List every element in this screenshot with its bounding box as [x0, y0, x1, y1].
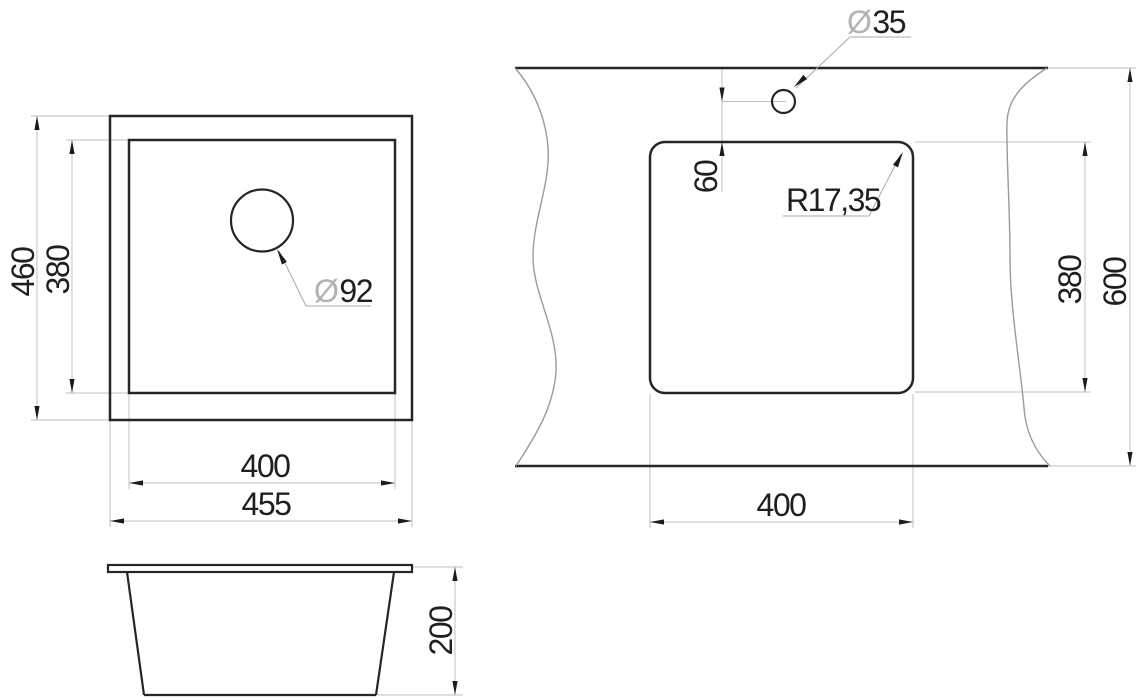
leader-arrowhead	[277, 249, 287, 265]
dim-label-depth: 200	[423, 606, 459, 656]
hole-diameter-value: 35	[872, 4, 905, 40]
arrowhead	[719, 88, 724, 102]
arrowhead	[1127, 452, 1132, 466]
arrowhead	[1082, 142, 1087, 156]
arrowhead	[452, 567, 457, 581]
arrowhead	[69, 140, 74, 154]
dim-label-corner-radius: R17,35	[786, 182, 881, 218]
drain-hole	[231, 190, 293, 252]
arrowhead	[381, 480, 395, 485]
dim-label-hole-offset: 60	[688, 160, 724, 193]
dim-label-hole-diameter: Ø35	[847, 4, 906, 40]
arrowhead	[129, 480, 143, 485]
arrowhead	[719, 142, 724, 156]
technical-drawing-canvas: 460 380 400 455 Ø92 200	[0, 0, 1140, 700]
arrowhead	[110, 518, 124, 523]
drain-diameter-value: 92	[339, 273, 372, 309]
dim-label-panel-height: 600	[1097, 257, 1133, 307]
side-view: 200	[108, 565, 463, 695]
arrowhead	[1127, 68, 1132, 82]
arrowhead	[34, 406, 39, 420]
arrowhead	[398, 518, 412, 523]
arrowhead	[1082, 378, 1087, 392]
sink-rim-profile	[108, 565, 412, 572]
arrowhead	[69, 379, 74, 393]
sink-bowl-edge	[129, 140, 395, 393]
drawing-page: 460 380 400 455 Ø92 200	[0, 0, 1140, 700]
arrowhead	[899, 519, 913, 524]
dim-label-cutout-width: 400	[757, 487, 807, 523]
break-line-left	[515, 68, 556, 466]
dim-label-cutout-height: 380	[1052, 255, 1088, 305]
dim-label-outer-width: 455	[242, 486, 292, 522]
dim-label-inner-height: 380	[40, 245, 76, 295]
sink-wall-left	[127, 572, 144, 695]
top-view: 460 380 400 455 Ø92	[5, 116, 412, 527]
arrowhead	[34, 116, 39, 130]
dim-label-outer-height: 460	[5, 247, 41, 297]
sink-outer-rim	[110, 116, 412, 420]
arrowhead	[650, 519, 664, 524]
cutout-view: Ø35 60 R17,35 380 600 400	[515, 4, 1136, 528]
sink-wall-right	[376, 572, 394, 695]
leader-arrowhead	[794, 75, 807, 87]
arrowhead	[452, 681, 457, 695]
leader-arrowhead	[893, 152, 903, 167]
dim-label-inner-width: 400	[241, 448, 291, 484]
diameter-symbol: Ø	[847, 4, 871, 40]
diameter-symbol: Ø	[314, 273, 338, 309]
break-line-right	[1007, 68, 1050, 466]
dim-label-drain-diameter: Ø92	[314, 273, 373, 309]
